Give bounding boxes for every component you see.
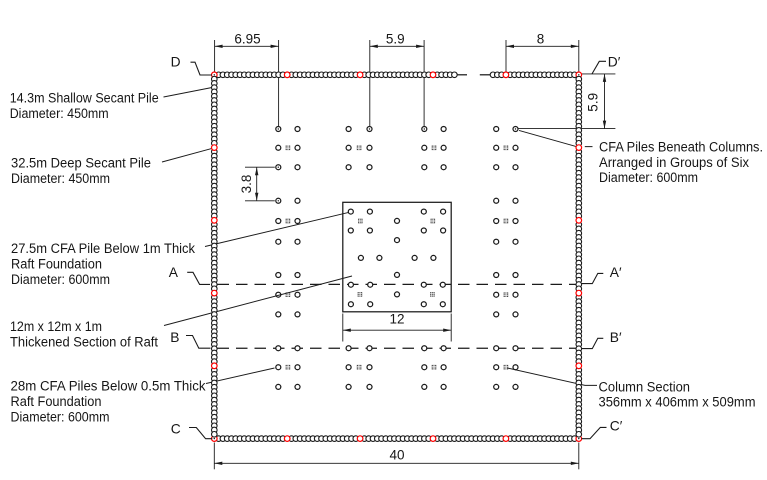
svg-text:Diameter: 450mm: Diameter: 450mm — [10, 106, 109, 121]
svg-text:C: C — [171, 421, 181, 436]
svg-text:28m CFA Piles Below 0.5m Thick: 28m CFA Piles Below 0.5m Thick — [11, 379, 206, 394]
svg-text:Diameter: 600mm: Diameter: 600mm — [11, 272, 110, 287]
svg-text:CFA Piles Beneath Columns.: CFA Piles Beneath Columns. — [599, 140, 763, 155]
svg-text:A′: A′ — [610, 265, 622, 280]
svg-text:3.8: 3.8 — [239, 175, 254, 194]
svg-text:D: D — [171, 55, 181, 70]
svg-text:12: 12 — [389, 311, 404, 326]
svg-text:C′: C′ — [610, 418, 623, 433]
svg-text:Diameter: 450mm: Diameter: 450mm — [11, 171, 110, 186]
svg-text:Arranged in Groups of Six: Arranged in Groups of Six — [599, 155, 749, 170]
svg-text:14.3m Shallow Secant Pile: 14.3m Shallow Secant Pile — [10, 91, 159, 106]
svg-text:B′: B′ — [610, 330, 622, 345]
svg-text:27.5m CFA Pile Below 1m Thick: 27.5m CFA Pile Below 1m Thick — [11, 241, 195, 256]
svg-text:Raft Foundation: Raft Foundation — [11, 257, 102, 272]
svg-text:5.9: 5.9 — [386, 31, 405, 46]
svg-text:8: 8 — [537, 31, 545, 46]
svg-text:Diameter: 600mm: Diameter: 600mm — [11, 410, 110, 425]
svg-text:6.95: 6.95 — [234, 31, 260, 46]
svg-text:Thickened Section of Raft: Thickened Section of Raft — [10, 335, 158, 350]
svg-text:5.9: 5.9 — [586, 93, 601, 112]
svg-text:Raft Foundation: Raft Foundation — [11, 394, 102, 409]
svg-text:D′: D′ — [608, 55, 621, 70]
svg-text:40: 40 — [389, 448, 404, 463]
svg-text:356mm x 406mm x 509mm: 356mm x 406mm x 509mm — [599, 395, 756, 410]
svg-text:A: A — [169, 265, 179, 280]
svg-text:32.5m Deep Secant Pile: 32.5m Deep Secant Pile — [11, 156, 151, 171]
svg-text:12m x 12m x 1m: 12m x 12m x 1m — [10, 319, 102, 334]
svg-text:B: B — [170, 330, 179, 345]
svg-text:Column Section: Column Section — [599, 380, 691, 395]
svg-text:Diameter: 600mm: Diameter: 600mm — [599, 170, 698, 185]
